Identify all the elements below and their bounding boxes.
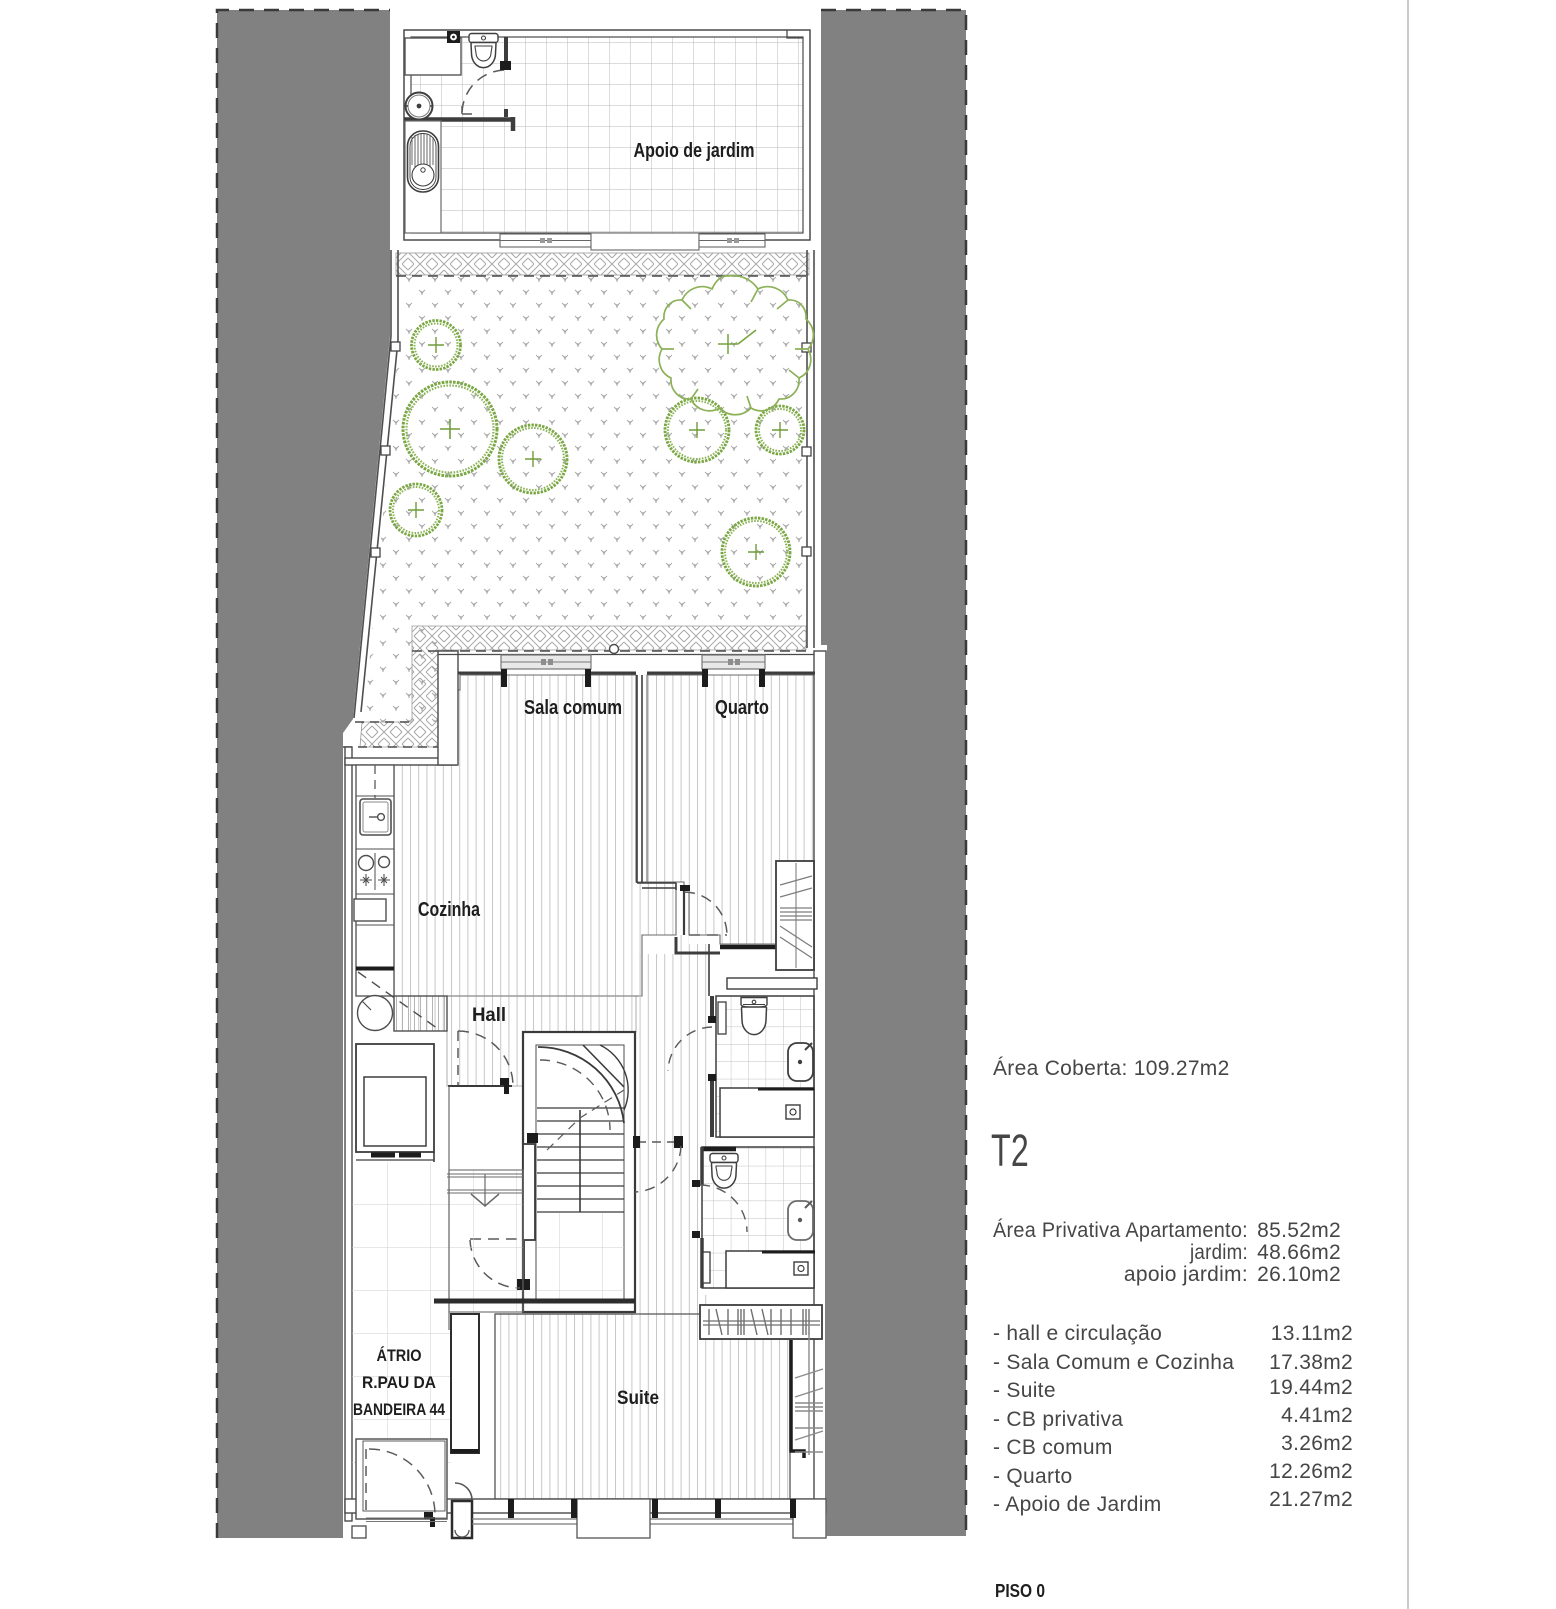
svg-text:jardim:: jardim:	[1189, 1241, 1248, 1264]
svg-text:T2: T2	[991, 1125, 1029, 1176]
svg-text:ÁTRIO: ÁTRIO	[377, 1346, 422, 1365]
svg-text:4.41m2: 4.41m2	[1281, 1404, 1353, 1427]
svg-text:19.44m2: 19.44m2	[1269, 1376, 1353, 1399]
svg-text:17.38m2: 17.38m2	[1269, 1351, 1353, 1374]
svg-text:Apoio de jardim: Apoio de jardim	[634, 140, 755, 162]
svg-text:R.PAU DA: R.PAU DA	[362, 1373, 436, 1392]
svg-text:Quarto: Quarto	[715, 697, 769, 719]
svg-text:Hall: Hall	[472, 1005, 506, 1026]
svg-text:Sala comum: Sala comum	[524, 697, 622, 719]
svg-text:85.52m2: 85.52m2	[1257, 1219, 1341, 1242]
svg-text:3.26m2: 3.26m2	[1281, 1432, 1353, 1455]
svg-text:Cozinha: Cozinha	[418, 899, 481, 921]
svg-text:Área Privativa Apartamento:: Área Privativa Apartamento:	[993, 1219, 1248, 1242]
svg-text:Suite: Suite	[617, 1388, 659, 1409]
svg-text:- Quarto: - Quarto	[993, 1465, 1072, 1488]
svg-text:BANDEIRA 44: BANDEIRA 44	[353, 1400, 445, 1419]
svg-text:13.11m2: 13.11m2	[1271, 1322, 1353, 1345]
svg-text:12.26m2: 12.26m2	[1269, 1460, 1353, 1483]
svg-text:Área Coberta: 109.27m2: Área Coberta: 109.27m2	[993, 1057, 1230, 1080]
svg-text:- Apoio de Jardim: - Apoio de Jardim	[993, 1493, 1162, 1516]
svg-text:48.66m2: 48.66m2	[1257, 1241, 1341, 1264]
svg-text:PISO 0: PISO 0	[995, 1581, 1045, 1601]
svg-text:- hall e circulação: - hall e circulação	[993, 1322, 1162, 1345]
svg-text:- CB privativa: - CB privativa	[993, 1408, 1123, 1431]
svg-text:- Suite: - Suite	[993, 1379, 1056, 1402]
svg-text:- CB comum: - CB comum	[993, 1436, 1113, 1459]
svg-text:26.10m2: 26.10m2	[1257, 1263, 1341, 1286]
svg-text:apoio jardim:: apoio jardim:	[1124, 1263, 1248, 1286]
svg-text:- Sala Comum e Cozinha: - Sala Comum e Cozinha	[993, 1351, 1234, 1374]
svg-text:21.27m2: 21.27m2	[1269, 1488, 1353, 1511]
